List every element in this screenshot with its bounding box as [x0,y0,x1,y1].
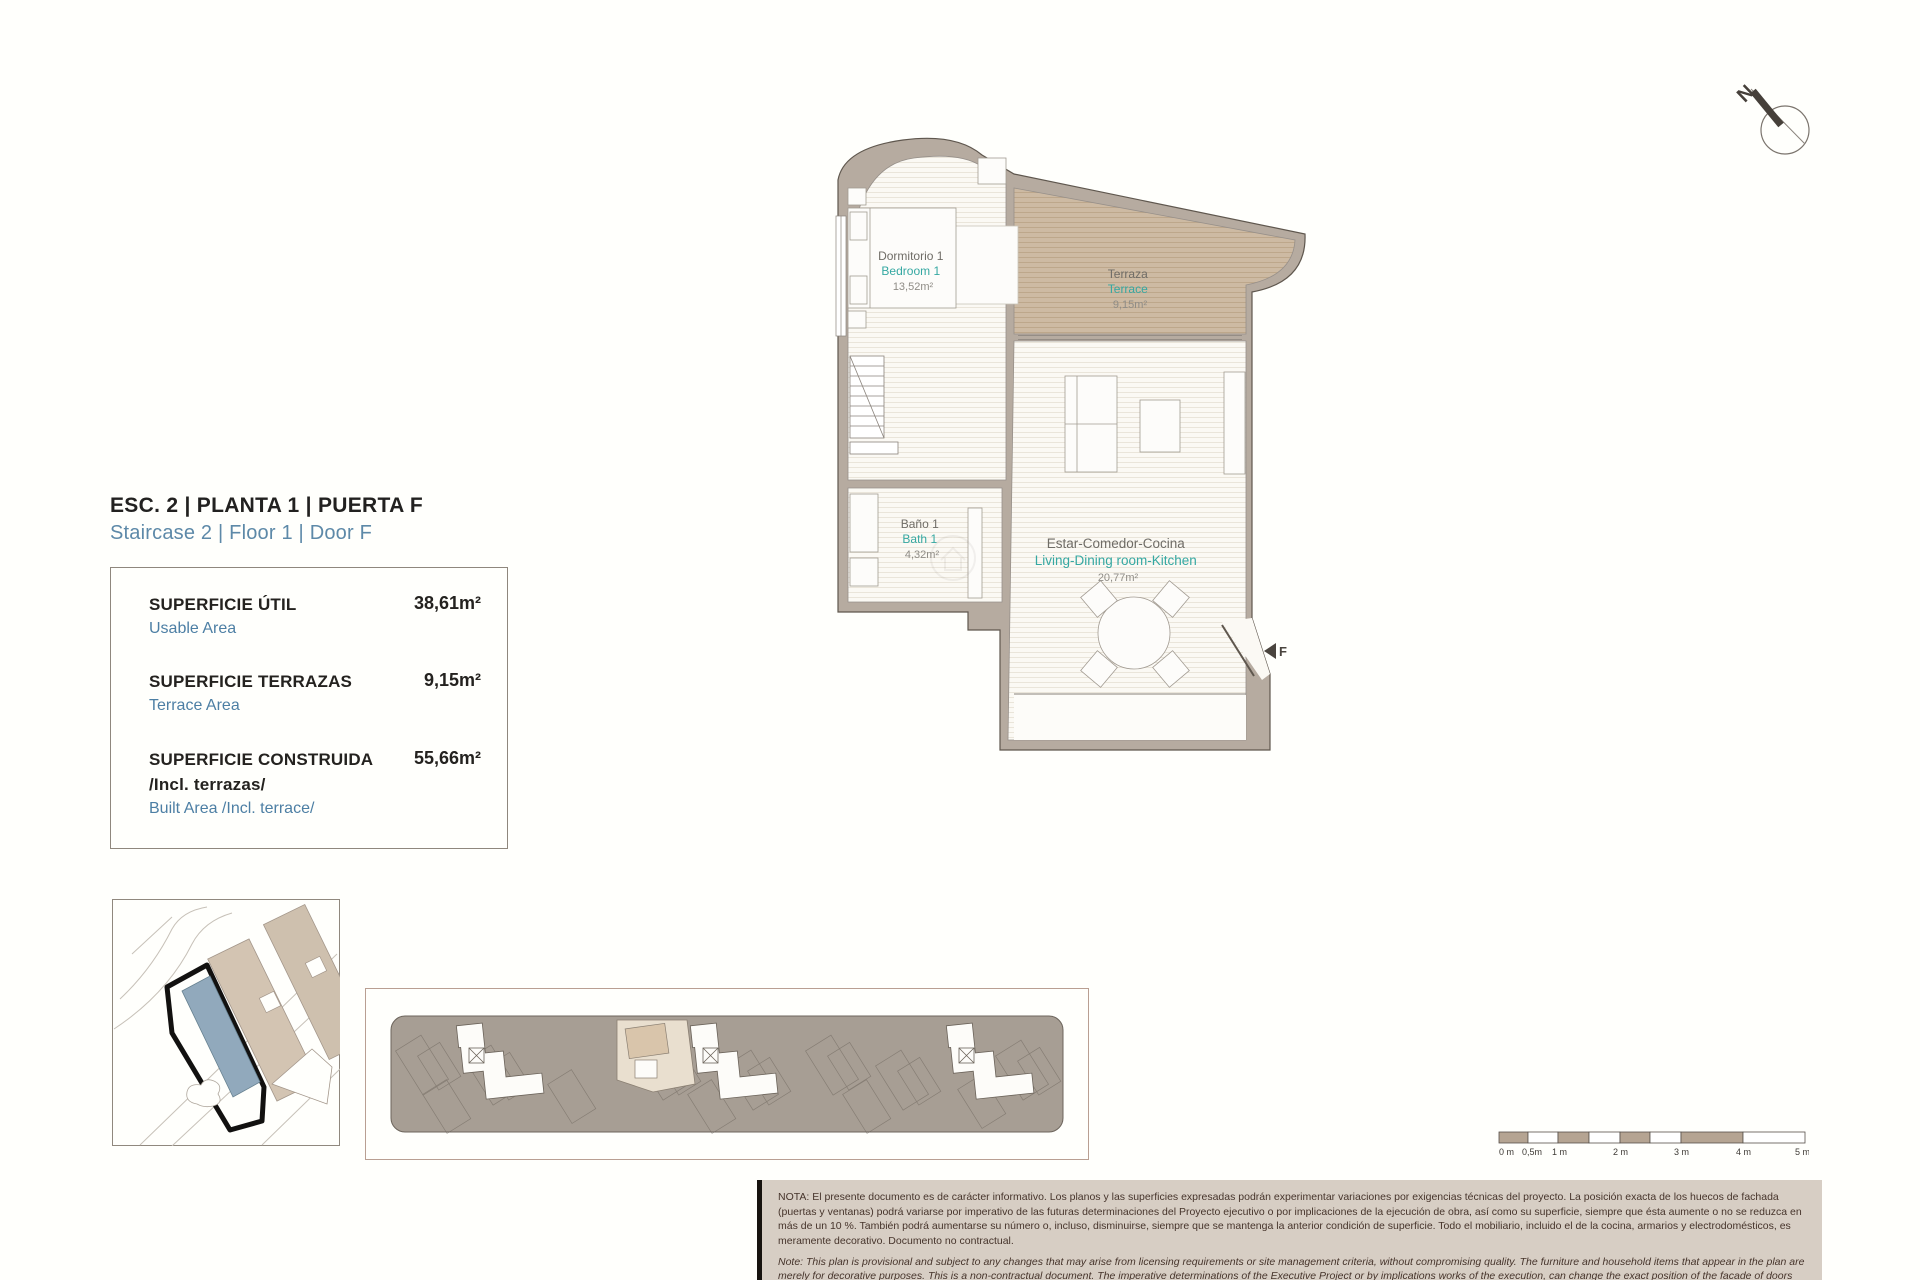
terrace-area-value: 9,15m² [424,670,481,691]
legal-note-en: Note: This plan is provisional and subje… [762,1249,1822,1280]
built-area-value: 55,66m² [414,748,481,769]
scale-4: 4 m [1736,1147,1751,1157]
usable-area-label-en: Usable Area [149,620,236,638]
bath-toilet [850,558,878,586]
scale-3: 3 m [1674,1147,1689,1157]
kitchen-counter [1224,372,1245,474]
scale-bar: 0 m 0,5m 1 m 2 m 3 m 4 m 5 m [1497,1128,1809,1162]
floor-plan-sheet: ESC. 2 | PLANTA 1 | PUERTA F Staircase 2… [0,0,1920,1280]
living-lower-strip [1014,695,1246,740]
terrace-area-label-en: Terrace Area [149,697,240,715]
terrace-label: Terraza Terrace 9,15m² [1108,265,1152,311]
built-area-label-en: Built Area /Incl. terrace/ [149,800,314,818]
site-plan-map [112,899,340,1146]
door-arrow-icon [1264,643,1276,659]
scale-05: 0,5m [1522,1147,1542,1157]
building-strip-plan [365,988,1089,1160]
door-letter: F [1279,644,1287,659]
bath-label: Baño 1 Bath 1 4,32m² [901,515,944,561]
pillow-2 [850,276,867,304]
nightstand [848,188,866,205]
apartment-floor-plan: F Dormitorio 1 Bedroom 1 13,52m² Terraza… [818,128,1363,768]
usable-area-value: 38,61m² [414,593,481,614]
scale-0: 0 m [1499,1147,1514,1157]
strip-highlighted-unit [617,1020,695,1092]
side-table [1140,400,1180,452]
scale-1: 1 m [1552,1147,1567,1157]
built-area-label-es: SUPERFICIE CONSTRUIDA [149,750,373,770]
legal-note-box: NOTA: El presente documento es de caráct… [757,1180,1822,1280]
bath-vanity [850,494,878,552]
terrace-area-label-es: SUPERFICIE TERRAZAS [149,672,352,692]
surface-areas-box: SUPERFICIE ÚTIL 38,61m² Usable Area SUPE… [110,567,508,849]
north-label: N [1733,81,1759,107]
pillow [850,212,867,240]
page-title: ESC. 2 | PLANTA 1 | PUERTA F [110,494,423,518]
bedroom-window [836,216,846,336]
page-subtitle: Staircase 2 | Floor 1 | Door F [110,522,372,545]
built-area-label-es2: /Incl. terrazas/ [149,775,266,795]
scale-5: 5 m [1795,1147,1809,1157]
closet [978,158,1006,184]
door-marker: F [1264,643,1287,659]
legal-note-es: NOTA: El presente documento es de caráct… [762,1180,1822,1249]
scale-segments [1499,1132,1805,1143]
usable-area-label-es: SUPERFICIE ÚTIL [149,595,297,615]
north-compass: N [1733,70,1833,180]
scale-2: 2 m [1613,1147,1628,1157]
nightstand-2 [848,311,866,328]
